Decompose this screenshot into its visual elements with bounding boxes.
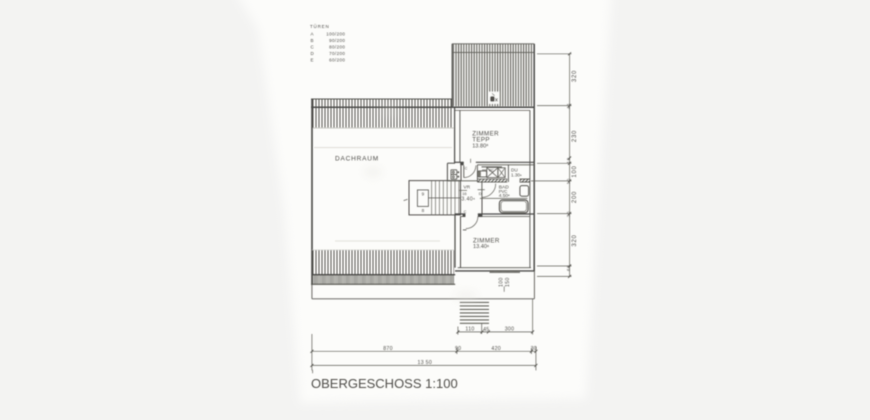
svg-text:870: 870 [383,346,393,352]
svg-text:90/200: 90/200 [329,38,345,43]
svg-text:30: 30 [566,211,571,217]
svg-text:100/200: 100/200 [326,32,345,37]
svg-text:200: 200 [572,191,578,203]
svg-text:41: 41 [566,103,571,109]
svg-text:9: 9 [422,192,425,197]
svg-text:E: E [311,57,314,62]
svg-text:230: 230 [572,130,578,142]
svg-text:WC: WC [489,168,495,172]
svg-text:10: 10 [566,178,571,184]
svg-text:13.80a: 13.80a [472,143,488,149]
svg-text:70/200: 70/200 [329,51,345,56]
svg-text:320: 320 [572,234,578,246]
svg-text:16: 16 [462,191,467,196]
svg-text:420: 420 [491,346,501,352]
svg-text:110: 110 [465,327,474,333]
svg-text:TÜREN: TÜREN [310,23,330,29]
svg-text:60/200: 60/200 [329,57,345,62]
svg-text:10: 10 [566,157,571,163]
svg-text:100: 100 [572,165,578,177]
svg-text:DACHRAUM: DACHRAUM [335,156,379,163]
svg-text:B: B [311,38,314,43]
svg-text:320: 320 [572,70,578,82]
svg-text:C: C [465,167,468,171]
svg-text:C: C [311,45,315,50]
svg-text:45: 45 [483,327,489,333]
svg-text:OBERGESCHOSS 1:100: OBERGESCHOSS 1:100 [311,376,458,391]
svg-text:100: 100 [498,277,504,287]
svg-text:VR: VR [463,184,470,190]
svg-text:60: 60 [566,265,571,271]
svg-text:300: 300 [505,327,515,333]
svg-text:13.40a: 13.40a [473,244,489,250]
svg-text:D: D [479,191,482,196]
svg-text:8: 8 [422,208,425,213]
svg-text:30: 30 [531,346,537,352]
svg-text:13 50: 13 50 [418,360,432,366]
svg-text:80/200: 80/200 [329,45,345,50]
svg-text:150: 150 [505,277,511,287]
svg-text:90: 90 [455,346,461,352]
svg-text:C: C [464,210,467,214]
svg-text:D: D [311,51,315,56]
svg-text:A: A [311,32,314,37]
